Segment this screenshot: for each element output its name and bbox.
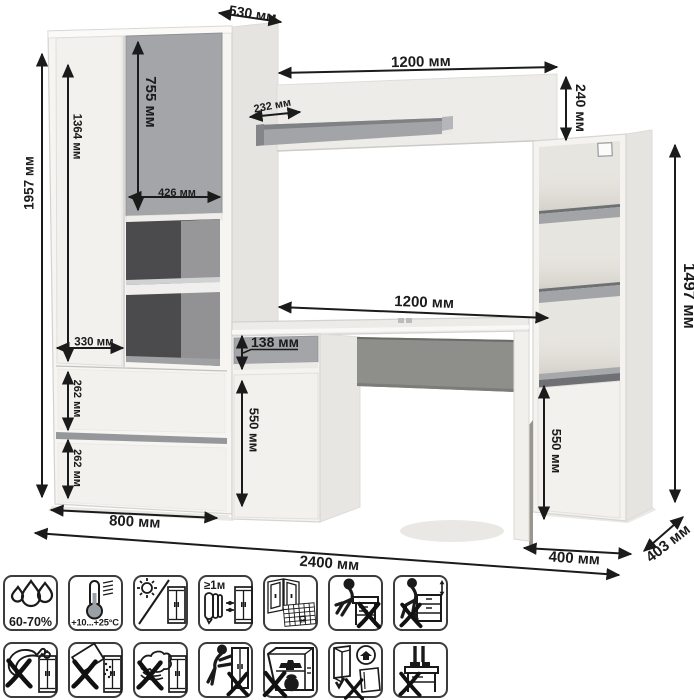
svg-text:1200 мм: 1200 мм	[391, 53, 451, 71]
svg-text:60-70%: 60-70%	[9, 615, 52, 629]
svg-text:240 мм: 240 мм	[573, 84, 589, 132]
svg-text:800 мм: 800 мм	[109, 512, 161, 531]
svg-text:755 мм: 755 мм	[142, 76, 159, 127]
svg-text:426 мм: 426 мм	[158, 187, 196, 199]
svg-text:550 мм: 550 мм	[247, 408, 262, 453]
svg-text:+10...+25°C: +10...+25°C	[71, 618, 119, 628]
svg-text:≥1м: ≥1м	[204, 580, 225, 592]
svg-text:1364 мм: 1364 мм	[71, 114, 83, 160]
svg-text:550 мм: 550 мм	[549, 429, 564, 474]
svg-text:262 мм: 262 мм	[71, 449, 83, 487]
svg-text:138 мм: 138 мм	[251, 334, 299, 350]
svg-text:262 мм: 262 мм	[71, 380, 83, 418]
svg-text:330 мм: 330 мм	[74, 337, 113, 349]
svg-text:1497 мм: 1497 мм	[680, 263, 694, 329]
svg-text:1957 мм: 1957 мм	[22, 156, 37, 210]
svg-text:1200 мм: 1200 мм	[394, 293, 454, 312]
svg-text:25: 25	[300, 618, 306, 623]
svg-text:400 мм: 400 мм	[548, 548, 600, 568]
